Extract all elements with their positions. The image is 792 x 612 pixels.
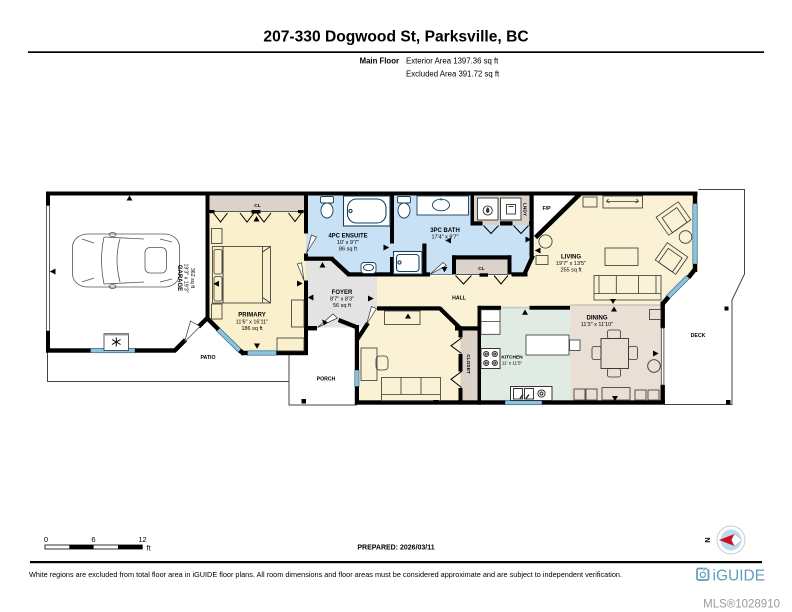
svg-text:186 sq ft: 186 sq ft — [241, 326, 263, 332]
svg-text:PORCH: PORCH — [317, 377, 336, 383]
svg-text:N: N — [703, 537, 712, 542]
svg-text:PRIMARY: PRIMARY — [238, 313, 265, 319]
svg-text:11' x 11'5": 11' x 11'5" — [502, 361, 523, 366]
svg-text:8'7" x 8'3": 8'7" x 8'3" — [330, 297, 354, 303]
svg-text:PREPARED: 2026/03/11: PREPARED: 2026/03/11 — [357, 545, 434, 552]
svg-text:Exterior Area 1397.36 sq ft: Exterior Area 1397.36 sq ft — [406, 57, 499, 66]
svg-text:3PC BATH: 3PC BATH — [430, 228, 460, 234]
svg-text:White regions are excluded fro: White regions are excluded from total fl… — [29, 570, 622, 579]
svg-text:4PC ENSUITE: 4PC ENSUITE — [328, 234, 367, 240]
svg-text:17'4" x 9'7": 17'4" x 9'7" — [431, 235, 458, 241]
svg-text:11'3" x 11'10": 11'3" x 11'10" — [581, 322, 613, 328]
svg-text:F/P: F/P — [542, 206, 551, 212]
svg-text:LNDY: LNDY — [522, 203, 528, 217]
svg-text:DINING: DINING — [587, 316, 608, 322]
svg-text:LIVING: LIVING — [561, 255, 581, 261]
svg-text:HALL: HALL — [452, 296, 467, 302]
svg-text:CL: CL — [478, 266, 484, 272]
svg-text:CLOSET: CLOSET — [465, 354, 471, 374]
svg-text:GARAGE: GARAGE — [176, 265, 182, 291]
svg-text:Main Floor: Main Floor — [360, 57, 399, 66]
svg-text:MLS®1028910: MLS®1028910 — [703, 599, 780, 611]
svg-text:12: 12 — [138, 535, 146, 544]
svg-text:11'6" x 16'11": 11'6" x 16'11" — [236, 320, 268, 326]
svg-text:FOYER: FOYER — [332, 290, 353, 296]
svg-text:iGUIDE: iGUIDE — [713, 567, 766, 584]
svg-text:PATIO: PATIO — [200, 355, 215, 361]
svg-text:0: 0 — [44, 535, 48, 544]
svg-text:362 sq ft: 362 sq ft — [189, 268, 195, 289]
svg-text:19'3" x 19'3": 19'3" x 19'3" — [183, 263, 189, 292]
svg-text:Excluded Area 391.72 sq ft: Excluded Area 391.72 sq ft — [406, 70, 500, 79]
svg-text:255 sq ft: 255 sq ft — [560, 268, 582, 274]
svg-text:86 sq ft: 86 sq ft — [339, 247, 358, 253]
svg-text:CL: CL — [254, 203, 260, 209]
svg-text:DECK: DECK — [691, 333, 706, 339]
svg-text:19'7" x 13'5": 19'7" x 13'5" — [556, 261, 586, 267]
svg-text:207-330 Dogwood St, Parksville: 207-330 Dogwood St, Parksville, BC — [263, 29, 528, 46]
svg-text:56 sq ft: 56 sq ft — [333, 303, 352, 309]
svg-text:6: 6 — [91, 535, 95, 544]
svg-text:10' x 9'7": 10' x 9'7" — [337, 240, 359, 246]
